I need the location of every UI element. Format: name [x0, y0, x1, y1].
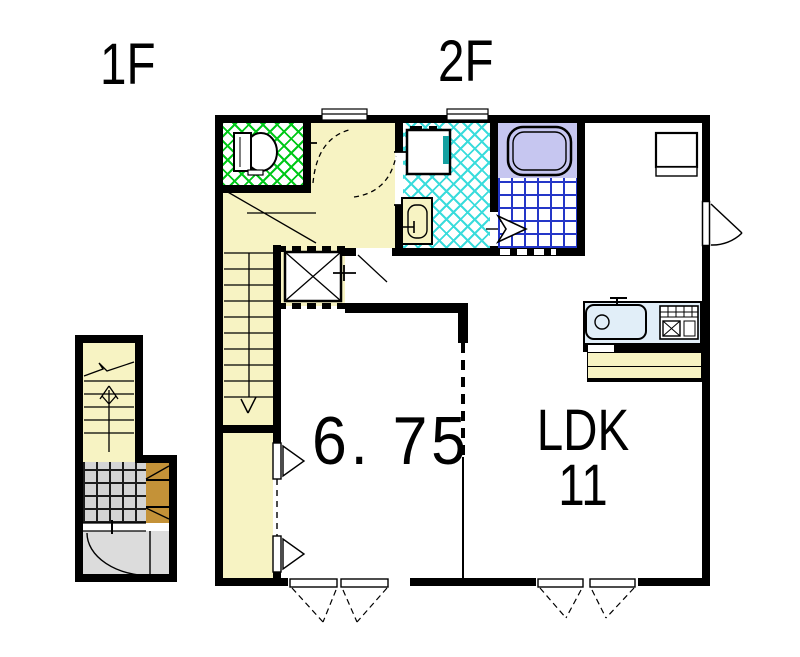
shoe-cabinet — [146, 462, 169, 523]
room-toilet — [223, 123, 303, 185]
wall-segment — [75, 335, 143, 343]
ldk-name: LDK — [535, 403, 632, 458]
wall-segment — [215, 425, 281, 433]
door-opening — [356, 248, 392, 256]
wall-segment — [702, 115, 710, 586]
door-opening — [702, 201, 710, 246]
room-washroom — [403, 123, 490, 248]
wall-segment — [458, 303, 468, 343]
wall-segment — [75, 574, 177, 582]
floor-label-2f: 2F — [438, 33, 494, 91]
refrigerator-space — [656, 133, 697, 176]
ldk-size: 11 — [535, 458, 632, 513]
closet-triangle-icon — [283, 446, 304, 476]
entrance-tile-floor — [83, 462, 146, 523]
stairs-landing-2f — [223, 193, 311, 245]
kitchen-floor-band-line — [588, 366, 701, 367]
wall-segment — [215, 185, 311, 193]
kitchen-counter-edge-gap — [588, 345, 614, 352]
door-opening — [395, 152, 403, 205]
floor-label-1f: 1F — [100, 36, 156, 94]
wall-segment — [135, 335, 143, 463]
shaft-surround — [273, 245, 345, 306]
closet-doors — [273, 443, 304, 572]
room-label-ldk: LDK 11 — [535, 403, 632, 513]
window-opening — [288, 578, 410, 586]
room-stairs-1f — [83, 343, 135, 462]
wall-segment — [303, 123, 311, 193]
wall-segment — [75, 335, 83, 582]
hall-door-leaf — [358, 255, 387, 282]
wall-segment — [345, 303, 468, 313]
wall-segment — [273, 433, 281, 443]
entrance-porch — [83, 531, 169, 574]
closet-triangle-icon — [283, 539, 304, 569]
bathroom-tile-floor — [498, 178, 577, 248]
door-opening — [490, 212, 498, 246]
room-hall — [311, 123, 395, 256]
wall-segment — [273, 572, 281, 578]
wall-segment — [169, 455, 177, 582]
wall-segment — [215, 115, 710, 123]
room-label-bedroom: 6. 75 — [312, 407, 470, 475]
wall-segment — [577, 123, 585, 256]
window-opening — [536, 578, 638, 586]
floorplan-canvas: 1F 2F — [0, 0, 800, 657]
wall-segment — [273, 245, 281, 433]
kitchen-counter — [583, 301, 702, 345]
kitchen-floor-band — [587, 352, 702, 382]
room-closet-2f — [223, 433, 273, 578]
room-stairs-2f — [223, 245, 273, 433]
bathtub-zone — [498, 123, 577, 178]
